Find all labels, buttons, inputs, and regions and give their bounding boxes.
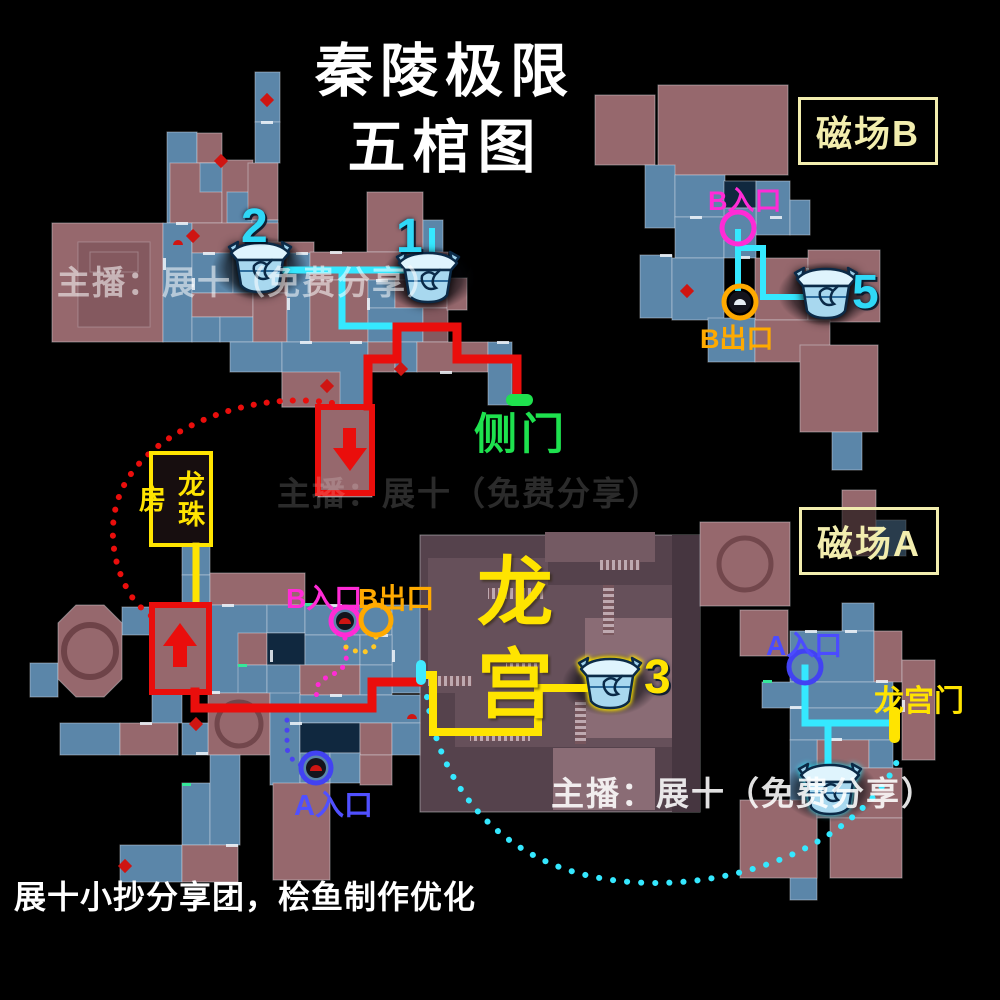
map-tile — [869, 740, 893, 768]
map-tile — [675, 217, 724, 258]
octagon-room — [58, 605, 122, 697]
map-tile — [152, 693, 182, 723]
map-tile — [182, 783, 210, 845]
door-dash — [140, 722, 152, 725]
palace-entrance-marker — [416, 660, 426, 685]
map-tile — [238, 633, 267, 665]
map-tile — [658, 85, 788, 175]
door-dash — [790, 706, 802, 709]
map-stage: 秦陵极限 五棺图 磁场B 磁场A 龙珠房 龙宫 侧门 龙宫门 B入口 B出口 B… — [0, 0, 1000, 1000]
door-dash — [196, 752, 208, 755]
map-tile — [800, 345, 878, 432]
title-line-1: 秦陵极限 — [230, 34, 660, 110]
map-tile — [790, 200, 810, 235]
palace-tile — [603, 585, 614, 635]
map-tile — [30, 663, 58, 697]
door-dash — [690, 216, 702, 219]
side-door-label: 侧门 — [474, 400, 568, 462]
map-tile — [700, 522, 790, 606]
green-door-dash — [238, 664, 247, 667]
watermark: 主播：展十（免费分享） — [551, 767, 936, 815]
map-tile — [267, 665, 300, 695]
door-dash — [203, 252, 215, 255]
map-tile — [640, 255, 672, 318]
title-line-2: 五棺图 — [230, 110, 660, 186]
door-dash — [350, 341, 362, 344]
dragon-palace-gate-label: 龙宫门 — [874, 676, 964, 720]
map-tile — [842, 603, 874, 631]
door-dash — [176, 222, 188, 225]
map-tile — [300, 665, 360, 695]
map-tile — [230, 342, 282, 372]
b-entrance-label-top: B入口 — [708, 179, 782, 218]
map-tile — [832, 432, 862, 470]
page-title: 秦陵极限 五棺图 — [230, 34, 660, 186]
watermark: 主播：展十（免费分享） — [277, 467, 662, 515]
dragon-pearl-room-label: 龙珠房 — [149, 451, 213, 547]
map-tile — [874, 631, 902, 682]
door-dash — [226, 844, 238, 847]
field-a-label: 磁场A — [799, 507, 939, 575]
chest-number: 3 — [644, 650, 671, 705]
door-dash — [830, 738, 842, 741]
footer-credit: 展十小抄分享团，桧鱼制作优化 — [14, 872, 476, 918]
map-tile — [360, 755, 392, 785]
map-tile — [672, 258, 724, 320]
map-tile — [392, 723, 420, 755]
a-entrance-label-right: A入口 — [766, 624, 842, 664]
map-tile — [220, 317, 253, 342]
door-dash — [440, 371, 452, 374]
a-entrance-label-left: A入口 — [294, 782, 373, 824]
door-dash — [290, 722, 302, 725]
dragon-palace-label: 龙宫 — [452, 552, 562, 736]
door-dash — [222, 604, 234, 607]
door-dash — [497, 341, 509, 344]
green-door-dash — [182, 783, 191, 786]
map-tile — [60, 723, 120, 755]
b-entrance-label-bottom: B入口 — [286, 577, 362, 617]
chest-number: 2 — [241, 199, 268, 254]
map-tile — [120, 723, 178, 755]
green-door-dash — [763, 680, 772, 683]
door-dash — [660, 254, 672, 257]
palace-tile — [600, 560, 640, 570]
door-dash — [845, 630, 857, 633]
map-tile — [210, 755, 240, 845]
door-dash — [300, 341, 312, 344]
map-tile — [305, 635, 360, 665]
map-tile — [360, 723, 392, 755]
chest-number: 1 — [396, 209, 423, 264]
door-dash — [330, 694, 342, 697]
map-tile — [238, 665, 267, 693]
watermark: 主播：展十（免费分享） — [57, 256, 442, 304]
map-tile — [192, 317, 220, 342]
b-exit-label-top: B出口 — [700, 317, 774, 356]
door-dash — [392, 650, 395, 662]
door-dash — [270, 650, 273, 662]
map-tile — [122, 607, 153, 635]
b-exit-label-bottom: B出口 — [358, 577, 434, 617]
field-b-label: 磁场B — [798, 97, 938, 165]
door-dash — [330, 251, 342, 254]
map-tile — [330, 753, 360, 783]
map-tile — [300, 723, 360, 753]
chest-number: 5 — [852, 265, 879, 320]
